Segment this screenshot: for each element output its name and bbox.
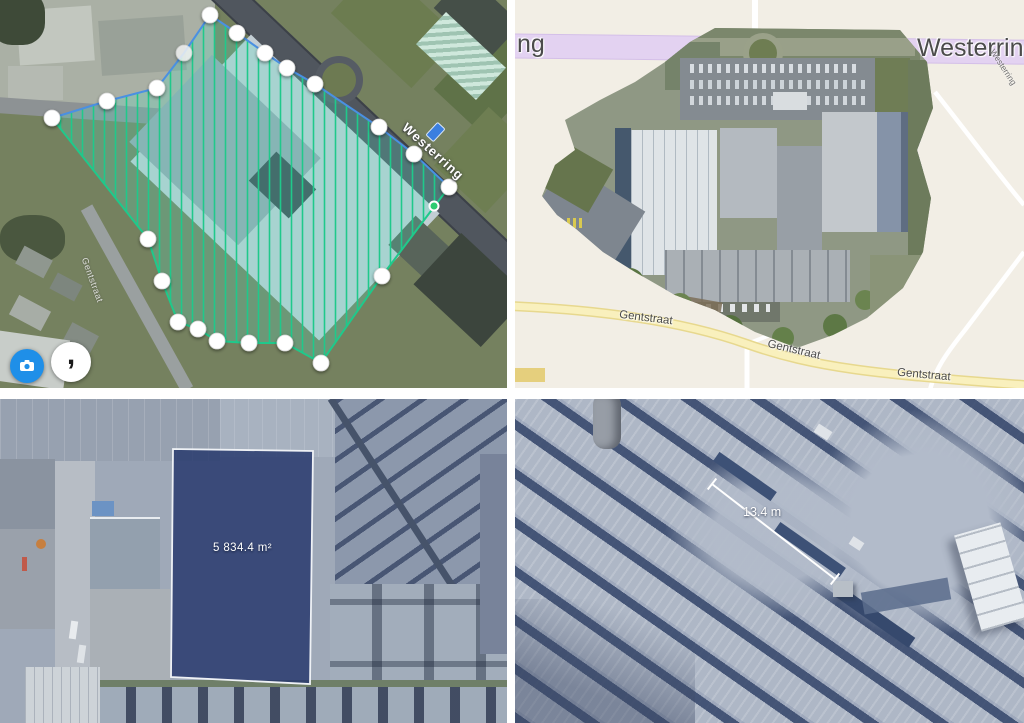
waypoint-marker[interactable] xyxy=(229,25,245,41)
map-feature xyxy=(515,368,545,382)
four-panel-collage: Westerring Gentstraat , xyxy=(0,0,1024,723)
waypoint-marker[interactable] xyxy=(170,314,186,330)
roof-selection-polygon[interactable] xyxy=(171,449,313,684)
waypoint-marker[interactable] xyxy=(371,119,387,135)
panel-roof-area[interactable]: 5 834.4 m² xyxy=(0,399,507,723)
ortho-detail xyxy=(777,146,822,252)
rotate-icon: , xyxy=(67,350,75,360)
flight-plan-overlay xyxy=(0,0,507,388)
waypoint-marker[interactable] xyxy=(257,45,273,61)
waypoint-marker[interactable] xyxy=(277,335,293,351)
highway-label: Westerring xyxy=(917,34,1024,63)
panel-orthomosaic-map[interactable]: ng Westerring Gentstraat Gentstraat Gent… xyxy=(515,0,1024,388)
area-label: 5 834.4 m² xyxy=(213,542,272,554)
minor-road xyxy=(930,252,1024,388)
waypoint-marker[interactable] xyxy=(176,45,192,61)
waypoint-marker[interactable] xyxy=(202,7,218,23)
distance-label: 13.4 m xyxy=(743,505,781,519)
waypoint-marker[interactable] xyxy=(44,110,60,126)
insert-vertex-dot[interactable] xyxy=(430,202,439,211)
ortho-detail xyxy=(690,64,860,73)
ortho-detail xyxy=(773,92,807,110)
ortho-detail xyxy=(875,58,910,120)
minor-road xyxy=(935,92,1024,205)
waypoint-marker[interactable] xyxy=(307,76,323,92)
layers-button[interactable] xyxy=(10,349,44,383)
ortho-detail xyxy=(720,128,777,218)
waypoint-marker[interactable] xyxy=(99,93,115,109)
area-overlay xyxy=(0,399,507,723)
waypoint-marker[interactable] xyxy=(149,80,165,96)
waypoint-marker[interactable] xyxy=(154,273,170,289)
panel-roof-distance[interactable]: 13.4 m xyxy=(515,399,1024,723)
waypoint-marker[interactable] xyxy=(313,355,329,371)
waypoint-marker[interactable] xyxy=(279,60,295,76)
distance-overlay xyxy=(515,399,1024,723)
panel-flight-plan[interactable]: Westerring Gentstraat , xyxy=(0,0,507,388)
waypoint-marker[interactable] xyxy=(241,335,257,351)
flight-area-polygon[interactable] xyxy=(52,15,449,363)
highway-label-partial: ng xyxy=(517,30,545,59)
ortho-detail xyxy=(690,80,865,89)
waypoint-marker[interactable] xyxy=(209,333,225,349)
waypoint-marker[interactable] xyxy=(374,268,390,284)
rotate-view-button[interactable]: , xyxy=(51,342,91,382)
waypoint-marker[interactable] xyxy=(140,231,156,247)
ortho-detail xyxy=(822,112,877,232)
measurement-line[interactable] xyxy=(708,479,840,585)
camera-icon xyxy=(18,357,36,375)
ortho-detail xyxy=(665,250,850,302)
waypoint-marker[interactable] xyxy=(190,321,206,337)
